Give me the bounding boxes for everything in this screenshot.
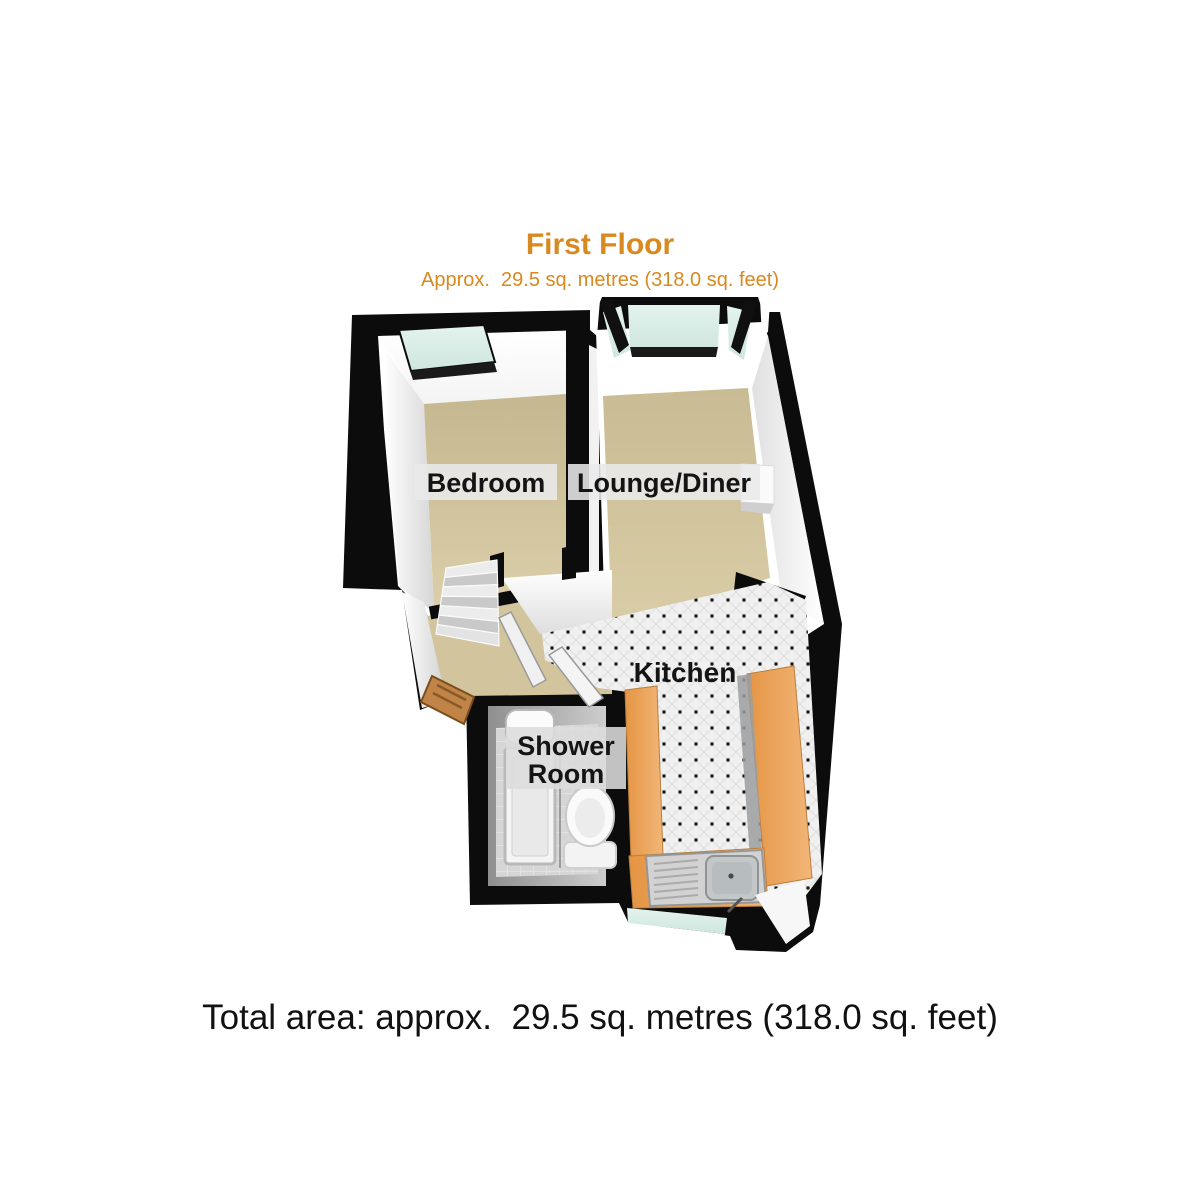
bedroom-lounge-wall <box>566 311 589 578</box>
shower-room-label-line1: Shower <box>517 731 615 761</box>
kitchen-label: Kitchen <box>634 657 737 688</box>
wall-stub <box>562 545 576 580</box>
toilet-seat <box>575 798 605 838</box>
bay-window-sill <box>630 347 718 357</box>
lounge-diner-label: Lounge/Diner <box>577 468 751 498</box>
kitchen-sink <box>646 850 766 912</box>
floor-plan: Bedroom Lounge/Diner Kitchen Shower Room <box>0 0 1200 1200</box>
shower-room-label-line2: Room <box>528 759 605 789</box>
staircase <box>436 560 499 646</box>
sink-drain <box>728 873 733 878</box>
bedroom-lounge-wall-face <box>589 345 599 575</box>
toilet <box>564 786 616 868</box>
floorplan-page: First Floor Approx. 29.5 sq. metres (318… <box>0 0 1200 1200</box>
bedroom-label: Bedroom <box>427 468 546 498</box>
bay-window-glass-center <box>628 305 720 348</box>
kitchen-counter-left <box>625 686 663 860</box>
